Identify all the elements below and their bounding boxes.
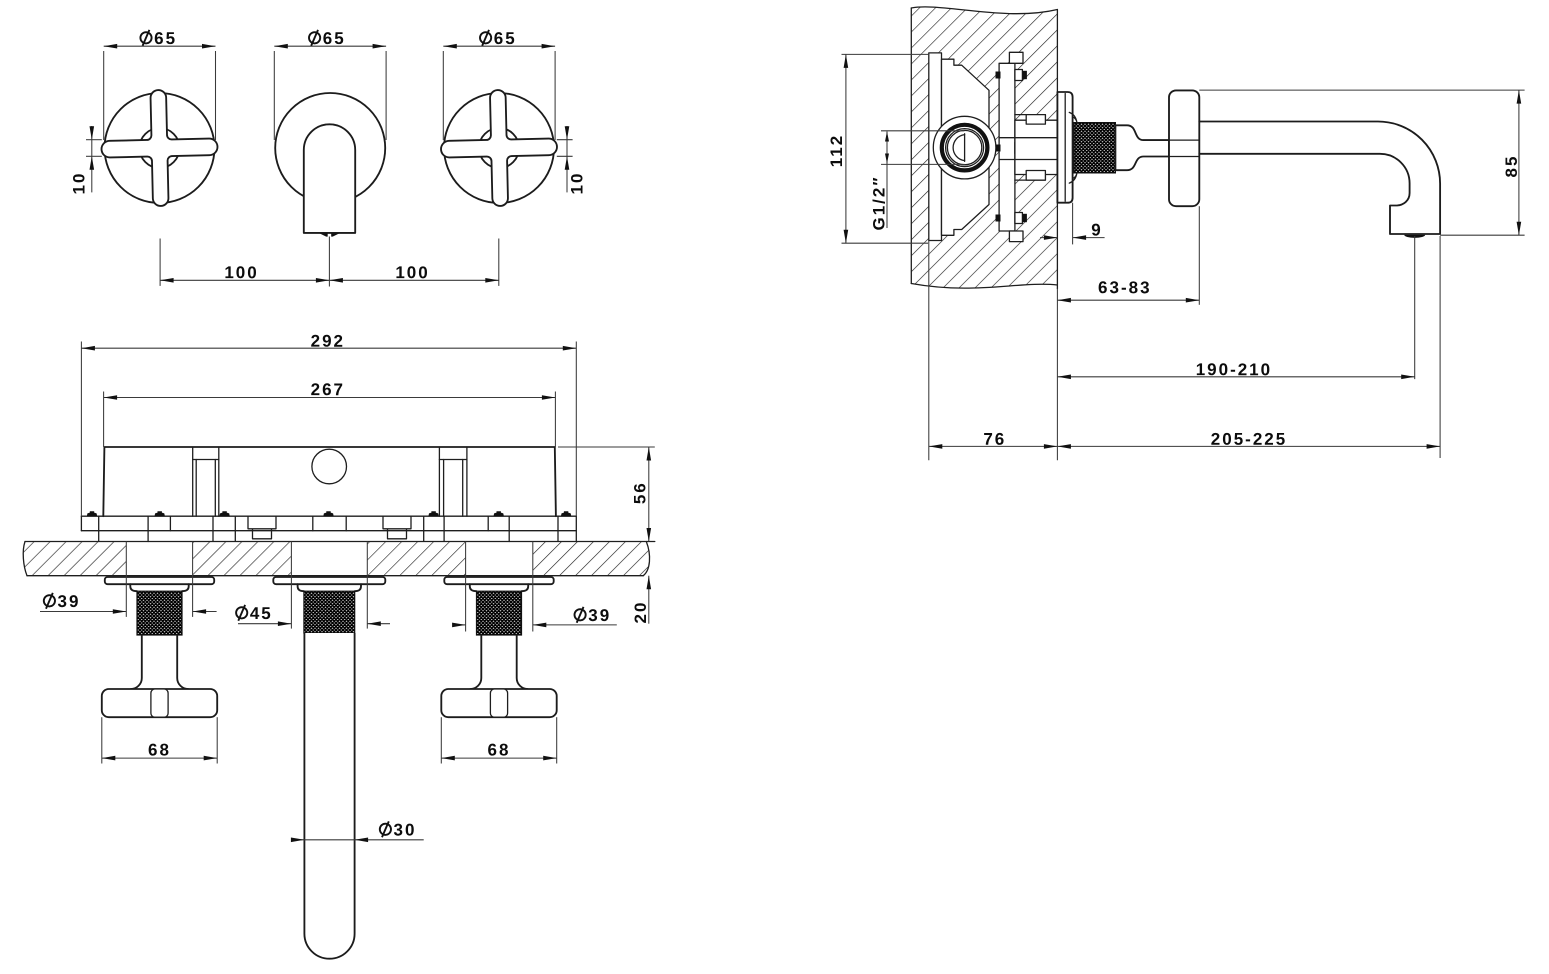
svg-text:85: 85	[1502, 155, 1521, 178]
svg-text:112: 112	[827, 134, 846, 167]
svg-text:45: 45	[250, 604, 273, 623]
svg-text:292: 292	[311, 332, 345, 351]
svg-text:10: 10	[568, 172, 587, 195]
svg-text:65: 65	[323, 29, 346, 48]
svg-text:100: 100	[395, 263, 429, 282]
svg-text:56: 56	[631, 481, 650, 504]
svg-text:20: 20	[631, 601, 650, 624]
svg-text:63-83: 63-83	[1098, 278, 1151, 297]
svg-text:65: 65	[494, 29, 517, 48]
svg-text:100: 100	[224, 263, 258, 282]
svg-text:267: 267	[311, 380, 345, 399]
svg-text:G1/2″: G1/2″	[870, 176, 889, 231]
svg-text:10: 10	[70, 172, 89, 195]
svg-text:65: 65	[154, 29, 177, 48]
svg-text:68: 68	[488, 740, 511, 759]
svg-text:76: 76	[983, 430, 1006, 449]
svg-text:190-210: 190-210	[1196, 360, 1272, 379]
svg-text:30: 30	[394, 820, 417, 839]
svg-text:205-225: 205-225	[1211, 430, 1287, 449]
svg-text:39: 39	[58, 592, 81, 611]
svg-text:9: 9	[1091, 220, 1102, 239]
svg-text:39: 39	[588, 606, 611, 625]
svg-text:68: 68	[148, 740, 171, 759]
